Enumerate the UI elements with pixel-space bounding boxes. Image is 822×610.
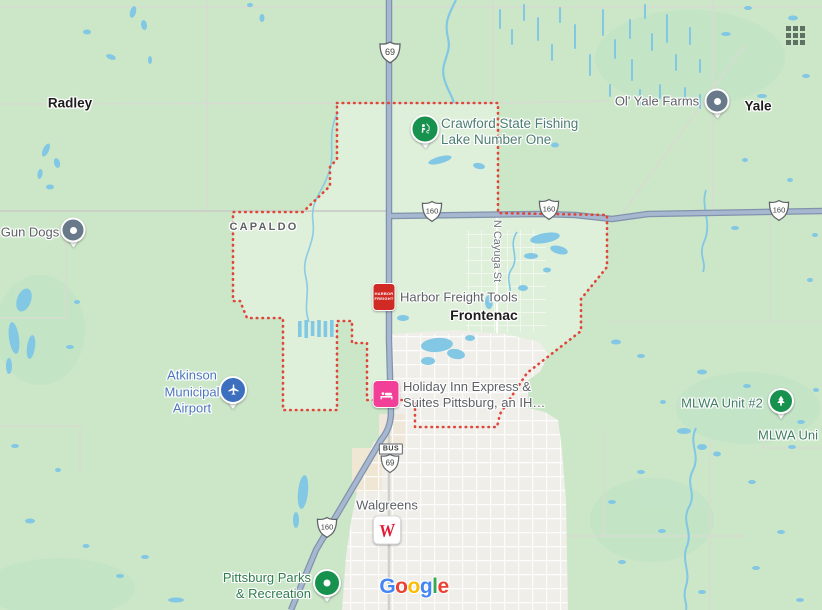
airplane-icon [219,376,247,404]
google-letter: G [379,575,395,598]
holiday-inn-line1: Holiday Inn Express & [403,379,545,395]
town-label-yale[interactable]: Yale [744,99,771,114]
town-label-frontenac[interactable]: Frontenac [450,307,518,323]
route-160-shield: 160 [314,516,341,544]
atkinson-airport-pin[interactable] [219,376,247,404]
crawford-line2: Lake Number One [441,132,578,148]
street-label-n-cayuga: N Cayuga St [491,220,503,282]
grid-dot [786,26,791,31]
grid-dot [800,33,805,38]
svg-text:69: 69 [385,47,395,57]
harbor-freight-icon[interactable]: HARBOR FREIGHT [373,283,396,311]
bed-icon [378,386,394,402]
crawford-lake-pin[interactable] [411,115,440,144]
route-160-shield: 160 [419,200,446,228]
route-160-shield: 160 [766,199,793,227]
ol-yale-farms-pin[interactable] [705,89,730,114]
atkinson-line3: Airport [165,400,220,417]
poi-label-mlwa-cut[interactable]: MLWA Uni [758,428,818,443]
grid-dot [786,33,791,38]
map-canvas[interactable]: HARBOR FREIGHT W 69 160 160 [0,0,822,610]
route-160-shield: 160 [536,198,563,226]
holiday-inn-icon[interactable] [373,380,400,408]
pine-tree-icon [768,388,794,414]
poi-label-pittsburg-parks[interactable]: Pittsburg Parks & Recreation [223,570,311,602]
apps-grid-icon[interactable] [786,26,805,45]
svg-text:160: 160 [773,205,785,214]
grid-dot [793,33,798,38]
poi-label-gun-dogs[interactable]: Gun Dogs [1,225,60,240]
harbor-freight-icon-text: FREIGHT [375,297,394,302]
grid-dot [800,40,805,45]
svg-text:160: 160 [543,204,555,213]
map-base-layer [0,0,822,610]
holiday-inn-line2: Suites Pittsburg, an IH… [403,395,545,411]
google-letter: o [395,575,407,598]
generic-poi-pin-icon [61,218,86,243]
grid-dot [793,40,798,45]
grid-dot [786,40,791,45]
parks-line2: & Recreation [223,586,311,602]
parks-line1: Pittsburg Parks [223,570,311,586]
poi-label-walgreens[interactable]: Walgreens [356,498,418,513]
mlwa-unit2-pin[interactable] [768,388,794,414]
atkinson-line2: Municipal [165,384,220,401]
walgreens-w-icon: W [378,520,396,540]
walgreens-icon[interactable]: W [373,516,401,545]
crawford-line1: Crawford State Fishing [441,116,578,132]
grid-dot [793,26,798,31]
svg-text:160: 160 [321,522,333,531]
fishing-icon [411,115,440,144]
svg-text:160: 160 [426,206,438,215]
poi-label-mlwa-unit2[interactable]: MLWA Unit #2 [681,396,763,411]
place-label-capaldo[interactable]: CAPALDO [230,221,299,233]
atkinson-line1: Atkinson [165,367,220,384]
poi-label-crawford-lake[interactable]: Crawford State Fishing Lake Number One [441,116,578,148]
google-letter: o [407,575,419,598]
grid-dot [800,26,805,31]
poi-label-harbor-freight[interactable]: Harbor Freight Tools [400,290,518,305]
google-letter: g [420,575,432,598]
generic-poi-pin-icon [705,89,730,114]
svg-text:69: 69 [386,459,395,468]
town-label-radley[interactable]: Radley [48,96,92,111]
pittsburg-parks-pin[interactable] [313,569,341,597]
poi-label-atkinson-airport[interactable]: Atkinson Municipal Airport [165,367,220,417]
poi-label-ol-yale-farms[interactable]: Ol' Yale Farms [615,94,699,109]
poi-label-holiday-inn[interactable]: Holiday Inn Express & Suites Pittsburg, … [403,379,545,411]
google-letter: e [437,575,448,598]
bus-69-shield: 69 [379,453,402,479]
us-69-shield: 69 [377,41,403,70]
google-logo[interactable]: Google [379,575,448,599]
gun-dogs-pin[interactable] [61,218,86,243]
parks-pin-icon [313,569,341,597]
